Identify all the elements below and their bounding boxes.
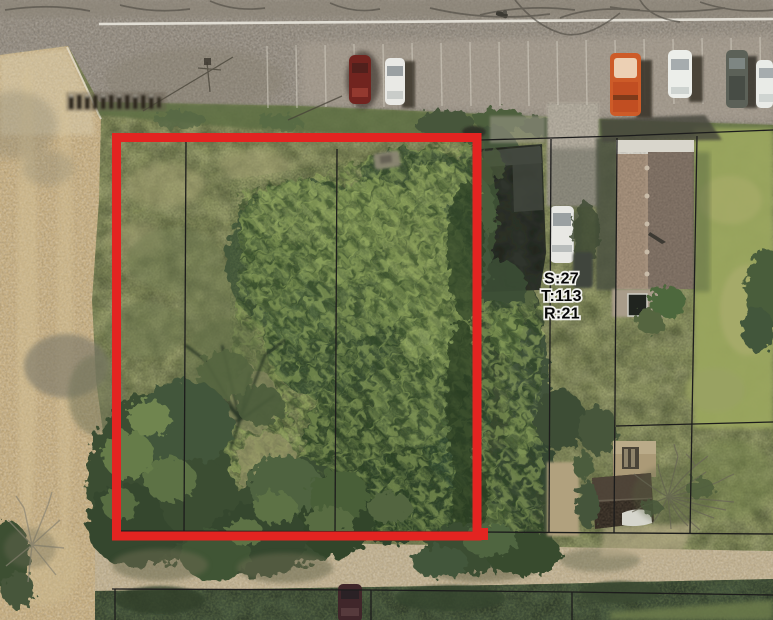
svg-text:S:27: S:27 [544, 271, 579, 288]
svg-text:T:113: T:113 [541, 288, 582, 305]
svg-text:R:21: R:21 [544, 306, 580, 323]
